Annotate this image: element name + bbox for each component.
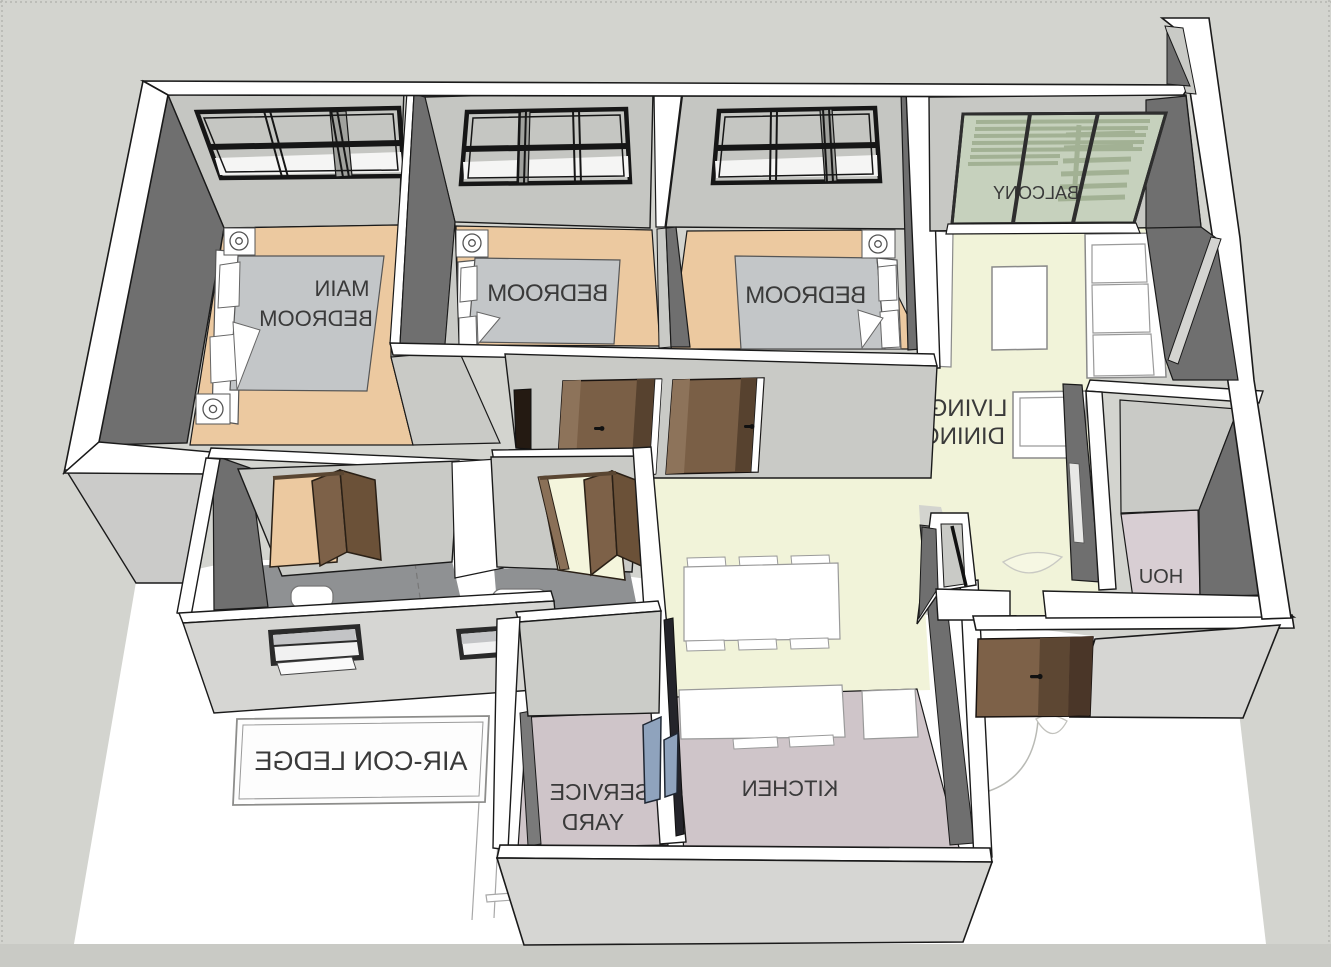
svg-text:HOU: HOU — [1139, 566, 1183, 588]
svg-text:YARD: YARD — [562, 809, 624, 835]
svg-text:KITCHEN: KITCHEN — [742, 776, 839, 801]
svg-text:AIR-CON LEDGE: AIR-CON LEDGE — [254, 746, 467, 776]
svg-text:BEDROOM: BEDROOM — [488, 280, 609, 307]
svg-text:BEDROOM: BEDROOM — [746, 282, 867, 309]
svg-text:LIVING: LIVING — [929, 395, 1008, 422]
svg-text:SERVICE: SERVICE — [550, 779, 651, 805]
svg-text:BALCONY: BALCONY — [993, 183, 1079, 203]
svg-text:BEDROOM: BEDROOM — [259, 306, 373, 331]
svg-text:MAIN: MAIN — [315, 276, 370, 301]
